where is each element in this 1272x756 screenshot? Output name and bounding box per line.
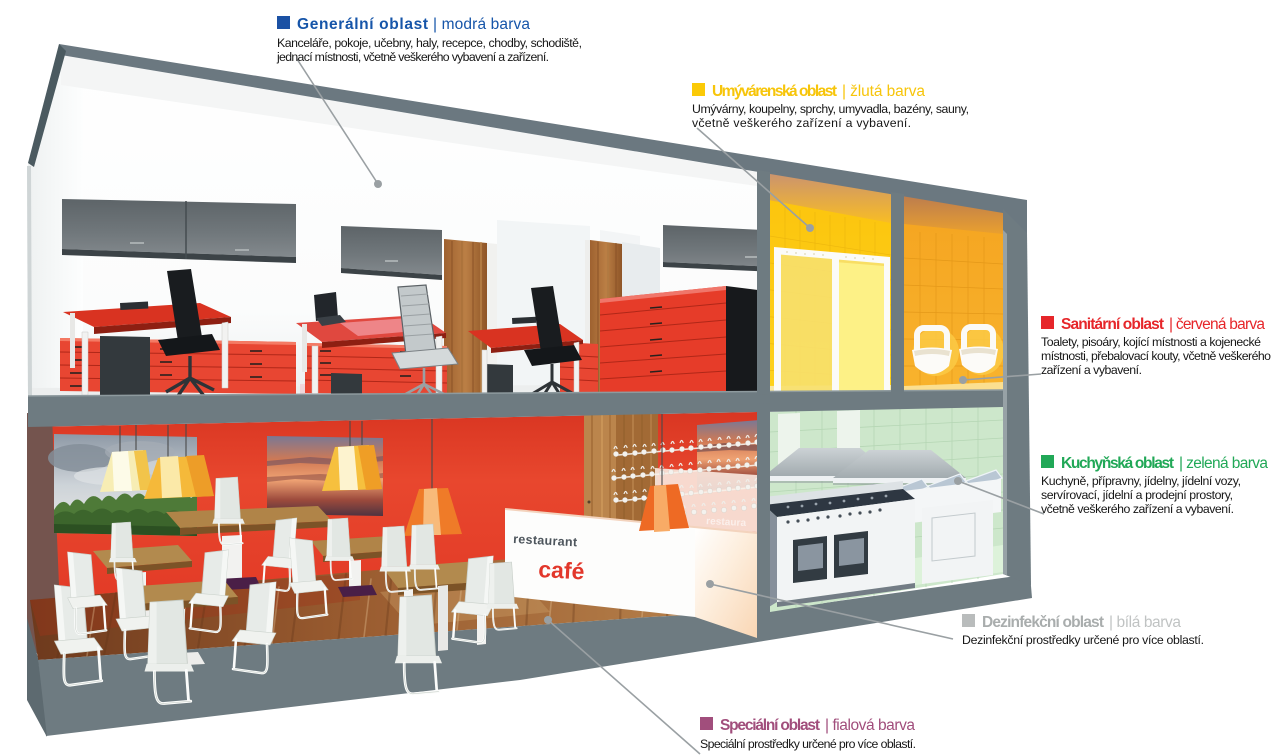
- svg-text:restaura: restaura: [706, 516, 747, 529]
- svg-text:| červená barva: | červená barva: [1169, 316, 1265, 333]
- svg-text:café: café: [538, 556, 585, 584]
- svg-text:Umývárenská oblast: Umývárenská oblast: [712, 83, 837, 100]
- svg-text:zařízení a vybavení.: zařízení a vybavení.: [1041, 363, 1142, 377]
- svg-text:Generální oblast: Generální oblast: [297, 16, 428, 33]
- svg-text:Umývárny, koupelny, sprchy, um: Umývárny, koupelny, sprchy, umyvadla, ba…: [692, 102, 969, 116]
- svg-text:| žlutá barva: | žlutá barva: [842, 83, 925, 100]
- svg-text:servírovací, jídelní a prodejn: servírovací, jídelní a prodejní prostory…: [1041, 488, 1233, 502]
- svg-text:Kuchyňská oblast: Kuchyňská oblast: [1061, 455, 1174, 472]
- svg-text:| fialová barva: | fialová barva: [825, 717, 915, 734]
- svg-text:Kanceláře, pokoje, učebny, hal: Kanceláře, pokoje, učebny, haly, recepce…: [277, 36, 582, 50]
- svg-text:Sanitární oblast: Sanitární oblast: [1061, 316, 1164, 333]
- svg-text:Speciální prostředky určené pr: Speciální prostředky určené pro více obl…: [700, 737, 916, 751]
- svg-text:včetně veškerého zařízení a vy: včetně veškerého zařízení a vybavení.: [1041, 502, 1234, 516]
- svg-text:Dezinfekční prostředky určené: Dezinfekční prostředky určené pro více o…: [962, 633, 1204, 647]
- svg-text:včetně veškerého zařízení a vy: včetně veškerého zařízení a vybavení.: [692, 116, 911, 130]
- svg-text:jednací místnosti, včetně vešk: jednací místnosti, včetně veškerého vyba…: [276, 50, 549, 64]
- svg-text:Speciální oblast: Speciální oblast: [720, 717, 820, 734]
- svg-text:| modrá barva: | modrá barva: [433, 16, 530, 33]
- svg-text:Dezinfekční oblast: Dezinfekční oblast: [982, 614, 1104, 631]
- svg-text:| bílá barva: | bílá barva: [1109, 614, 1181, 631]
- svg-text:Kuchyně, přípravny, jídelny, j: Kuchyně, přípravny, jídelny, jídelní voz…: [1041, 474, 1241, 488]
- svg-text:| zelená barva: | zelená barva: [1179, 455, 1268, 472]
- svg-text:Toalety, pisoáry, kojící místn: Toalety, pisoáry, kojící místnosti a koj…: [1041, 335, 1261, 349]
- svg-text:místnosti, přebalovací kouty,: místnosti, přebalovací kouty, včetně veš…: [1041, 349, 1271, 363]
